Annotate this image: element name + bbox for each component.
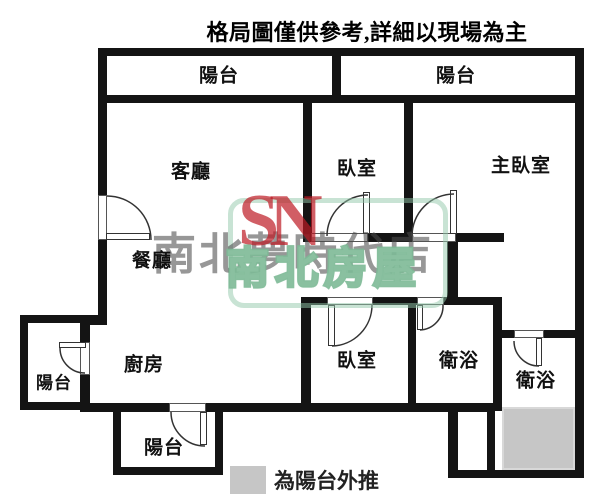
room-label-balcony-top-left: 陽台: [199, 61, 239, 88]
wall-corridor-nook: [447, 241, 458, 301]
wall-bottom-a: [80, 403, 170, 412]
wall-bedbot-bath1: [408, 297, 416, 412]
wall-balcl-kitchen-a: [80, 323, 90, 343]
room-label-dining-room: 餐廳: [132, 246, 172, 273]
wall-left-upper: [98, 48, 107, 196]
living-door-leaf: [106, 233, 150, 240]
legend: 為陽台外推: [230, 465, 379, 495]
wall-bath2-top-a: [497, 330, 515, 338]
room-label-balcony-left: 陽台: [36, 369, 72, 394]
wall-balc3-right: [215, 403, 223, 475]
room-label-living-room: 客廳: [171, 157, 211, 184]
wall-balcony-divider: [332, 48, 341, 103]
floor-plan: 格局圖僅供參考,詳細以現場為主: [0, 0, 600, 497]
wall-balcl-kitchen-b: [80, 374, 90, 405]
wall-main-top: [98, 95, 584, 103]
legend-label: 為陽台外推: [274, 465, 379, 495]
bathroom1-door-leaf: [417, 305, 423, 330]
wall-balcl-left: [20, 315, 28, 410]
wall-bath-divider: [493, 297, 502, 411]
master-door-leaf: [450, 190, 457, 234]
plan-title: 格局圖僅供參考,詳細以現場為主: [206, 15, 527, 47]
room-label-bedroom-top: 臥室: [337, 154, 377, 181]
bedroom-bottom-door-leaf: [328, 305, 335, 346]
wall-corridor-b: [455, 233, 504, 242]
wall-balcl-top: [20, 315, 90, 323]
pushed-out-balcony-area: [502, 407, 575, 470]
bedroom-bottom-door-arc: [332, 305, 372, 346]
bathroom2-door-opening: [514, 330, 544, 338]
balcony-bottom-door-leaf: [200, 412, 207, 445]
room-label-bathroom-2: 衛浴: [516, 366, 556, 393]
room-label-bedroom-bottom: 臥室: [337, 346, 377, 373]
wall-left-lower: [98, 240, 107, 325]
balcony-left-door-leaf: [59, 342, 86, 348]
legend-swatch: [230, 466, 266, 494]
bathroom2-door-leaf: [536, 338, 542, 366]
balcony-bottom-door-opening: [169, 403, 206, 412]
wall-pocket-right: [487, 411, 495, 470]
wall-outer-top: [98, 48, 584, 56]
wall-balc3-left: [113, 403, 121, 475]
room-label-balcony-top-right: 陽台: [436, 61, 476, 88]
room-label-balcony-bottom: 陽台: [144, 433, 184, 460]
room-label-bathroom-1: 衛浴: [439, 346, 479, 373]
watermark-brand-text: 南北房屋: [226, 248, 422, 291]
wall-bedbot-left: [301, 297, 311, 412]
room-label-kitchen: 廚房: [124, 350, 164, 377]
wall-right: [575, 48, 584, 478]
wall-balc3-bottom: [113, 467, 223, 475]
wall-bottom-right: [448, 470, 584, 478]
room-label-master-bedroom: 主臥室: [491, 151, 551, 178]
wall-bath2-top-b: [543, 330, 584, 338]
bathroom1-door-arc: [420, 305, 443, 330]
wall-pocket-left: [448, 403, 458, 478]
